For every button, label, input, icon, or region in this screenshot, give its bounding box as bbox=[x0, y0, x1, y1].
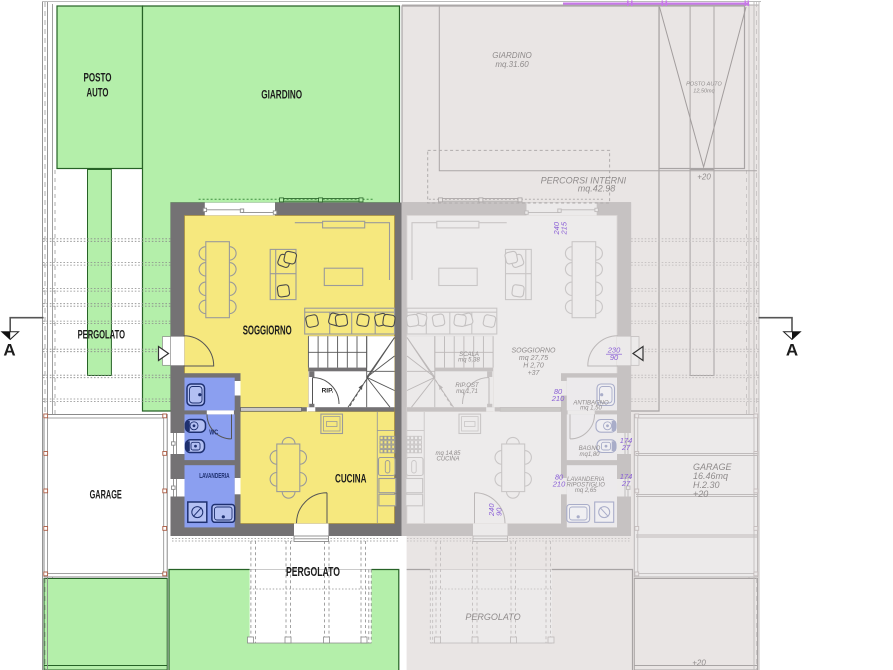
svg-text:27: 27 bbox=[621, 479, 631, 488]
svg-text:WC: WC bbox=[209, 430, 218, 437]
svg-text:PERGOLATO: PERGOLATO bbox=[286, 565, 340, 579]
svg-text:90: 90 bbox=[495, 507, 504, 516]
svg-text:SOGGIORNO: SOGGIORNO bbox=[243, 323, 292, 337]
svg-text:210: 210 bbox=[552, 480, 566, 489]
svg-text:+20: +20 bbox=[693, 489, 708, 499]
svg-text:mq.31.60: mq.31.60 bbox=[495, 60, 529, 69]
svg-text:CUCINA: CUCINA bbox=[335, 471, 367, 485]
svg-text:GIARDINO: GIARDINO bbox=[261, 90, 302, 102]
svg-text:POSTO: POSTO bbox=[84, 73, 112, 85]
svg-text:CUCINA: CUCINA bbox=[436, 457, 459, 463]
svg-text:AUTO: AUTO bbox=[87, 88, 109, 100]
svg-text:mq1,80: mq1,80 bbox=[579, 452, 600, 458]
svg-text:215: 215 bbox=[560, 221, 569, 235]
svg-text:mq 2,65: mq 2,65 bbox=[575, 488, 597, 494]
svg-text:A: A bbox=[3, 341, 15, 360]
svg-text:H 2,70: H 2,70 bbox=[523, 363, 544, 370]
svg-text:SOGGIORNO: SOGGIORNO bbox=[512, 348, 557, 355]
svg-text:LAVANDERIA: LAVANDERIA bbox=[199, 473, 229, 480]
svg-text:12,50mq: 12,50mq bbox=[693, 89, 715, 95]
svg-text:mq 27,75: mq 27,75 bbox=[519, 355, 548, 362]
svg-text:PERGOLATO: PERGOLATO bbox=[78, 330, 125, 342]
svg-text:+20: +20 bbox=[692, 659, 706, 668]
svg-text:mq 1,50: mq 1,50 bbox=[580, 406, 602, 412]
svg-text:GIARDINO: GIARDINO bbox=[492, 51, 532, 60]
svg-text:27: 27 bbox=[621, 443, 631, 452]
svg-text:mq.42.98: mq.42.98 bbox=[578, 184, 616, 194]
svg-text:+20: +20 bbox=[697, 173, 711, 182]
svg-text:+37: +37 bbox=[528, 370, 541, 377]
svg-text:mq 1,71: mq 1,71 bbox=[456, 389, 478, 395]
svg-text:GARAGE: GARAGE bbox=[90, 487, 122, 501]
svg-text:POSTO AUTO: POSTO AUTO bbox=[686, 82, 722, 88]
svg-text:A: A bbox=[786, 341, 798, 360]
svg-text:mq 5,38: mq 5,38 bbox=[458, 358, 480, 364]
svg-text:RIP.: RIP. bbox=[322, 388, 334, 395]
svg-text:210: 210 bbox=[551, 394, 565, 403]
svg-text:PERGOLATO: PERGOLATO bbox=[465, 612, 520, 622]
